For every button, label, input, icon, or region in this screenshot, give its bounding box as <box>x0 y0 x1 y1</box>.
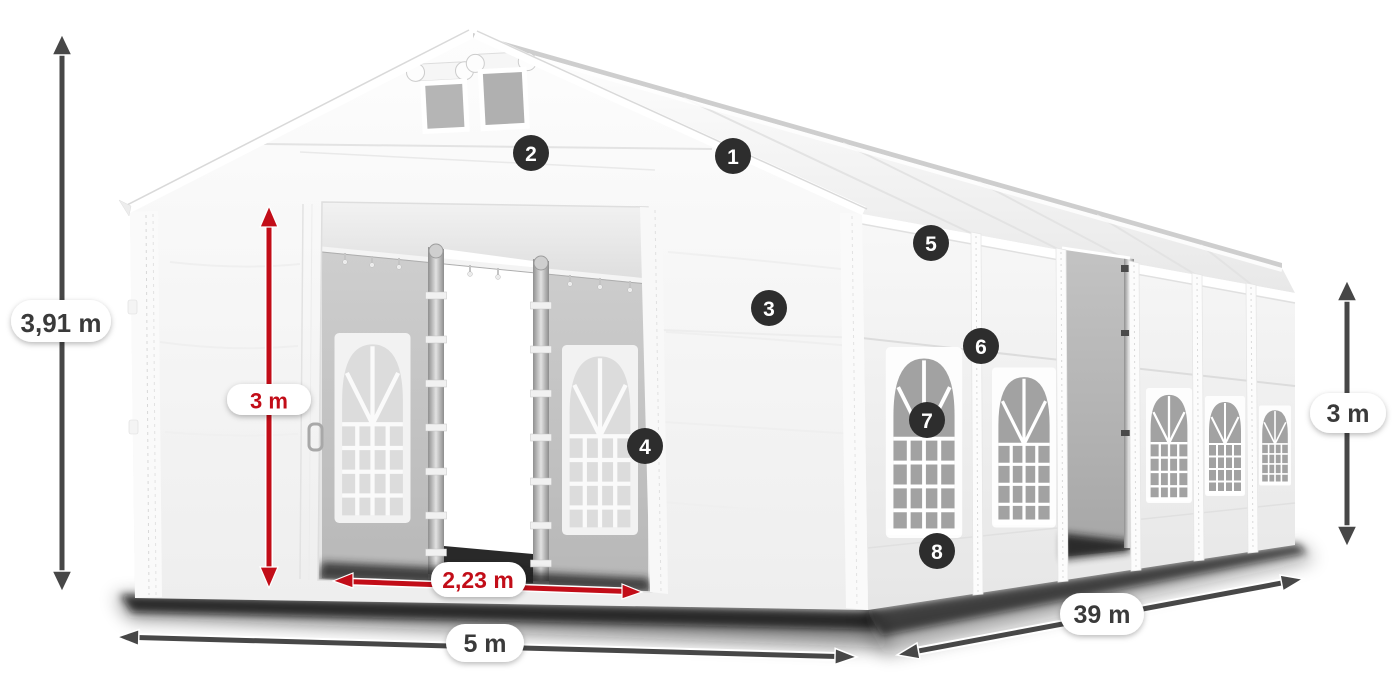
callout-number: 2 <box>525 143 537 166</box>
side-door-opening <box>1062 248 1134 560</box>
callout-badge-3: 3 <box>751 290 787 326</box>
interior-window-right <box>562 345 638 535</box>
side-window <box>992 368 1056 528</box>
callout-badge-4: 4 <box>627 428 663 464</box>
diagram-canvas: 3,91 m 3 m 2,23 m 5 m 39 m <box>0 0 1400 700</box>
dim-total-height: 3,91 m <box>11 34 111 592</box>
dim-side-height: 3 m <box>1310 280 1386 547</box>
open-passage <box>444 249 533 583</box>
interior-pole-left <box>426 244 447 579</box>
side-window <box>1259 406 1291 486</box>
callout-badge-8: 8 <box>919 533 955 569</box>
callout-number: 3 <box>763 298 775 321</box>
interior-pole-right <box>531 256 552 586</box>
length-label: 39 m <box>1074 601 1131 629</box>
callout-badge-5: 5 <box>913 225 949 261</box>
total-height-label: 3,91 m <box>21 308 102 338</box>
tent-dimension-diagram: 3,91 m 3 m 2,23 m 5 m 39 m <box>0 0 1400 700</box>
side-window <box>886 347 962 538</box>
callout-number: 6 <box>975 336 987 359</box>
interior-window-left <box>335 333 411 523</box>
side-window <box>1205 396 1245 496</box>
entrance-width-label: 2,23 m <box>442 567 514 593</box>
callout-number: 1 <box>727 146 739 169</box>
callout-number: 4 <box>639 436 651 459</box>
front-opening <box>318 202 652 592</box>
front-width-label: 5 m <box>463 630 506 658</box>
side-height-label: 3 m <box>1326 400 1369 428</box>
callout-badge-6: 6 <box>963 328 999 364</box>
entrance-height-label: 3 m <box>250 389 288 414</box>
callout-badge-7: 7 <box>909 402 945 438</box>
callout-number: 8 <box>931 541 943 564</box>
callout-number: 7 <box>921 410 933 433</box>
callout-badge-1: 1 <box>715 138 751 174</box>
callout-badge-2: 2 <box>513 135 549 171</box>
callout-number: 5 <box>925 233 937 256</box>
side-window <box>1146 388 1192 503</box>
